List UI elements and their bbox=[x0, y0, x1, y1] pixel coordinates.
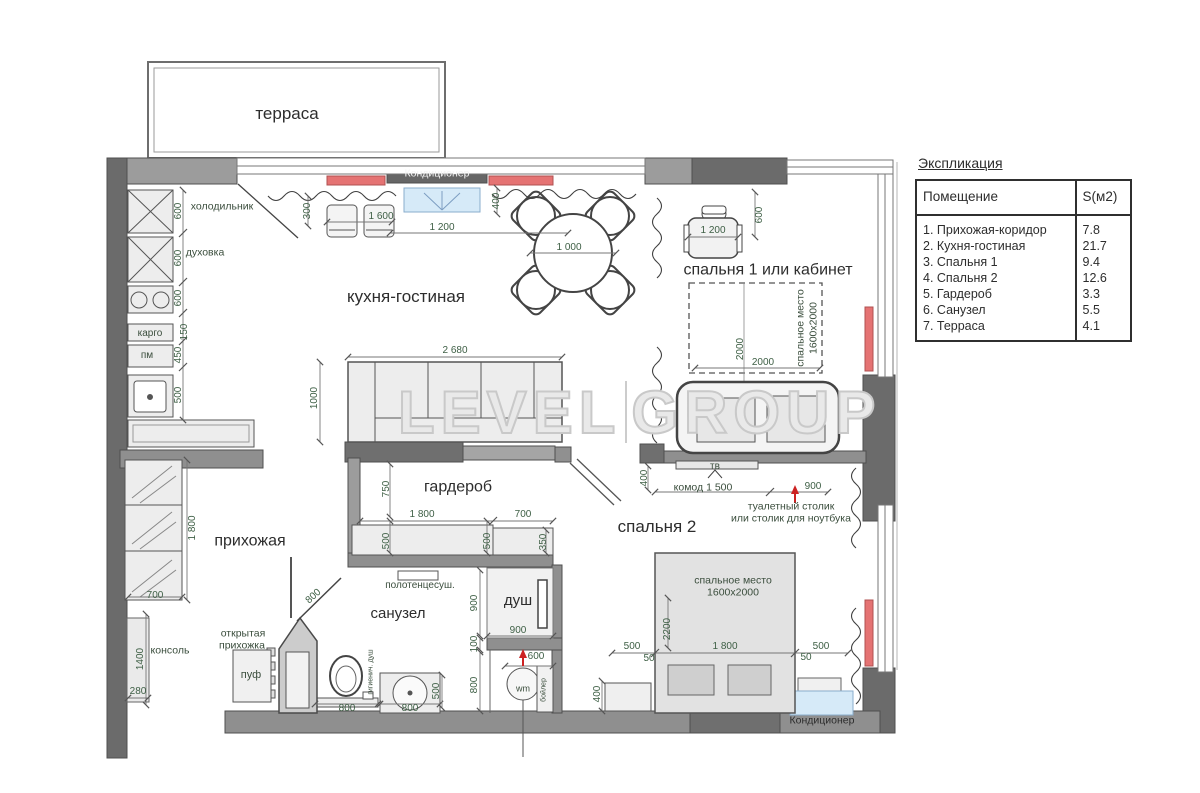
legend-room-name: 7. Терраса bbox=[916, 318, 1076, 341]
dim-900-shower-h: 900 bbox=[510, 626, 527, 637]
bedroom2-door-leaf bbox=[570, 463, 614, 505]
legend-col-area: S(м2) bbox=[1076, 180, 1131, 215]
legend-row: 3. Спальня 19.4 bbox=[916, 254, 1131, 270]
sink-drain bbox=[148, 395, 153, 400]
shower-label: душ bbox=[504, 593, 532, 609]
dim-500-bed-left: 500 bbox=[624, 642, 641, 653]
hallway-label: прихожая bbox=[214, 534, 285, 551]
dim-2200-bed: 2200 bbox=[663, 618, 674, 640]
dim-1800-wardrobe: 1 800 bbox=[409, 510, 434, 521]
legend-room-area: 4.1 bbox=[1076, 318, 1131, 341]
curtain-bedroom2-lower bbox=[852, 608, 861, 704]
dim-50-bed-left: 50 bbox=[643, 654, 654, 665]
legend-table: Помещение S(м2) 1. Прихожая-коридор7.82.… bbox=[915, 179, 1132, 342]
dim-500-wardrobe-b: 500 bbox=[483, 533, 494, 550]
dim-600-desk: 600 bbox=[755, 207, 766, 224]
legend-row: 4. Спальня 212.6 bbox=[916, 270, 1131, 286]
watermark-word-1: LEVEL bbox=[398, 378, 621, 447]
oven-label: духовка bbox=[186, 247, 225, 258]
dim-350-wardrobe: 350 bbox=[539, 534, 550, 551]
corner-cabinet-inner bbox=[286, 652, 309, 708]
dim-2000-h: 2000 bbox=[752, 358, 774, 369]
dim-600-oven: 600 bbox=[174, 250, 185, 267]
ac-label-top: Кондиционер bbox=[405, 168, 470, 179]
curtain-top-left bbox=[268, 192, 396, 201]
legend-room-area: 3.3 bbox=[1076, 286, 1131, 302]
legend-room-name: 6. Санузел bbox=[916, 302, 1076, 318]
radiator-top-left bbox=[327, 176, 385, 185]
legend-room-area: 21.7 bbox=[1076, 238, 1131, 254]
dim-50-bed-right: 50 bbox=[800, 653, 811, 664]
top-wall-mid-dark bbox=[692, 158, 787, 184]
bedroom2-door-stub bbox=[555, 447, 571, 462]
legend-row: 6. Санузел5.5 bbox=[916, 302, 1131, 318]
bed-pillow bbox=[728, 665, 771, 695]
wardrobe-closet-long bbox=[352, 525, 493, 555]
washing-machine-label: wm bbox=[516, 684, 530, 693]
dim-1800-bed: 1 800 bbox=[712, 642, 737, 653]
towel-dryer bbox=[398, 571, 438, 580]
legend-row: 1. Прихожая-коридор7.8 bbox=[916, 215, 1131, 238]
bed2-zone-label-1: спальное место bbox=[694, 575, 772, 586]
open-hallway-label-2: прихожка bbox=[219, 640, 265, 651]
ac-shelf-bedroom2 bbox=[798, 678, 841, 692]
dim-1600: 1 600 bbox=[368, 212, 393, 223]
open-hallway-label-1: открытая bbox=[221, 628, 266, 639]
legend-room-area: 7.8 bbox=[1076, 215, 1131, 238]
watermark-word-2: GROUP bbox=[631, 378, 881, 447]
kitchen-appliances bbox=[128, 190, 254, 447]
dim-400-nightstand: 400 bbox=[593, 686, 604, 703]
dim-300: 300 bbox=[303, 203, 314, 220]
dim-600-fridge: 600 bbox=[174, 203, 185, 220]
nightstand bbox=[605, 683, 651, 711]
dim-2680: 2 680 bbox=[442, 346, 467, 357]
dim-750-wardrobe: 750 bbox=[382, 481, 393, 498]
dim-400-bedroom2-top: 400 bbox=[640, 470, 651, 487]
legend-room-name: 3. Спальня 1 bbox=[916, 254, 1076, 270]
legend: Экспликация Помещение S(м2) 1. Прихожая-… bbox=[915, 155, 1133, 342]
legend-row: 5. Гардероб3.3 bbox=[916, 286, 1131, 302]
bathroom-label: санузел bbox=[371, 606, 426, 622]
console-label: консоль bbox=[151, 645, 190, 656]
legend-room-area: 9.4 bbox=[1076, 254, 1131, 270]
dim-1000-table: 1 000 bbox=[556, 243, 581, 254]
dim-1800-hall: 1 800 bbox=[188, 515, 199, 540]
vanity-arrow-head bbox=[791, 485, 799, 494]
desk-side-bar bbox=[737, 225, 742, 252]
legend-rows: 1. Прихожая-коридор7.82. Кухня-гостиная2… bbox=[916, 215, 1131, 341]
dresser-label: комод 1 500 bbox=[674, 482, 733, 493]
dishwasher-label: пм bbox=[141, 351, 153, 362]
ac-unit-bedroom2 bbox=[790, 691, 853, 715]
wardrobe-label: гардероб bbox=[424, 480, 492, 497]
dim-500-sink: 500 bbox=[174, 387, 185, 404]
bed1-zone-label-2: 1600х2000 bbox=[808, 302, 819, 354]
watermark: LEVEL GROUP bbox=[398, 376, 796, 448]
dim-600-wm: 600 bbox=[528, 652, 545, 663]
dim-1200-top: 1 200 bbox=[429, 223, 454, 234]
dim-500-basin: 500 bbox=[432, 683, 443, 700]
dim-800-wm: 800 bbox=[470, 677, 481, 694]
toilet bbox=[330, 656, 362, 696]
cargo-label: карго bbox=[138, 329, 163, 340]
legend-room-name: 2. Кухня-гостиная bbox=[916, 238, 1076, 254]
dim-900-shower-v: 900 bbox=[470, 595, 481, 612]
desk-side-bar bbox=[684, 225, 689, 252]
ac-label-bottom: Кондиционер bbox=[790, 715, 855, 726]
kitchen-counter bbox=[128, 420, 254, 447]
pouf-label: пуф bbox=[241, 670, 261, 682]
towel-dryer-label: полотенцесуш. bbox=[385, 581, 455, 592]
shower-bottom-wall bbox=[487, 638, 562, 650]
legend-room-name: 5. Гардероб bbox=[916, 286, 1076, 302]
bedroom2-furniture bbox=[605, 461, 795, 713]
dim-450-pm: 450 bbox=[174, 347, 185, 364]
legend-room-name: 4. Спальня 2 bbox=[916, 270, 1076, 286]
armchair-1 bbox=[327, 205, 357, 237]
bottom-wall-dark bbox=[690, 711, 780, 733]
legend-header-row: Помещение S(м2) bbox=[916, 180, 1131, 215]
dim-280-hall: 280 bbox=[130, 687, 147, 698]
dim-1400-hall: 1400 bbox=[136, 648, 147, 670]
dim-900-vanity: 900 bbox=[805, 482, 822, 493]
legend-room-area: 5.5 bbox=[1076, 302, 1131, 318]
radiator-bedroom2 bbox=[865, 600, 873, 666]
curtain-bedroom1-upper bbox=[653, 198, 662, 278]
tv-label-bedroom2: тв bbox=[710, 462, 720, 473]
bottom-wall bbox=[225, 711, 880, 733]
dim-700-wardrobe: 700 bbox=[515, 510, 532, 521]
bed1-zone-label-1: спальное место bbox=[795, 289, 806, 367]
dim-400-top: 400 bbox=[492, 193, 503, 210]
bed-pillow bbox=[668, 665, 714, 695]
dim-2000-v: 2000 bbox=[736, 338, 747, 360]
radiator-bedroom1 bbox=[865, 307, 873, 371]
kitchen-living-label: кухня-гостиная bbox=[347, 288, 465, 306]
dim-800-toilet: 800 bbox=[339, 704, 356, 715]
terrace-label: терраса bbox=[255, 105, 318, 123]
dim-600-hob: 600 bbox=[174, 290, 185, 307]
shower-door bbox=[538, 580, 547, 628]
desk-chair-back bbox=[702, 206, 726, 214]
legend-col-room: Помещение bbox=[916, 180, 1076, 215]
dim-800-basin: 800 bbox=[402, 704, 419, 715]
tv-wall-light bbox=[463, 446, 555, 460]
legend-title: Экспликация bbox=[918, 155, 1133, 171]
dim-1200-desk: 1 200 bbox=[700, 226, 725, 237]
dim-150-cargo: 150 bbox=[180, 324, 191, 341]
dim-1000-sofa: 1000 bbox=[310, 387, 321, 409]
bedroom2-door-leaf bbox=[577, 459, 621, 501]
radiator-top-right bbox=[489, 176, 553, 185]
legend-room-area: 12.6 bbox=[1076, 270, 1131, 286]
curtain-bedroom2-upper bbox=[852, 468, 861, 548]
dim-700-hall: 700 bbox=[147, 591, 164, 602]
watermark-divider bbox=[625, 381, 627, 443]
dim-100: 100 bbox=[470, 636, 481, 653]
bedroom2-label: спальня 2 bbox=[618, 518, 697, 536]
basin-drain bbox=[408, 691, 413, 696]
hob-box bbox=[128, 286, 173, 313]
hallway-furniture bbox=[125, 460, 317, 713]
legend-row: 7. Терраса4.1 bbox=[916, 318, 1131, 341]
legend-row: 2. Кухня-гостиная21.7 bbox=[916, 238, 1131, 254]
bed2-zone-label-2: 1600х2000 bbox=[707, 587, 759, 598]
dim-500-bed-right: 500 bbox=[813, 642, 830, 653]
dim-500-wardrobe-a: 500 bbox=[382, 533, 393, 550]
fridge-label: холодильник bbox=[191, 201, 253, 212]
bedroom1-label: спальня 1 или кабинет bbox=[683, 263, 852, 280]
vanity-label-2: или столик для ноутбука bbox=[731, 513, 851, 524]
hygienic-shower-label: гигиенич. душ bbox=[367, 649, 374, 694]
boiler-label: бойлер bbox=[540, 678, 547, 702]
floorplan-page: { "legend": { "title": "Экспликация", "c… bbox=[0, 0, 1200, 793]
top-wall-mid-light bbox=[645, 158, 692, 184]
vanity-label-1: туалетный столик bbox=[748, 501, 835, 512]
legend-room-name: 1. Прихожая-коридор bbox=[916, 215, 1076, 238]
